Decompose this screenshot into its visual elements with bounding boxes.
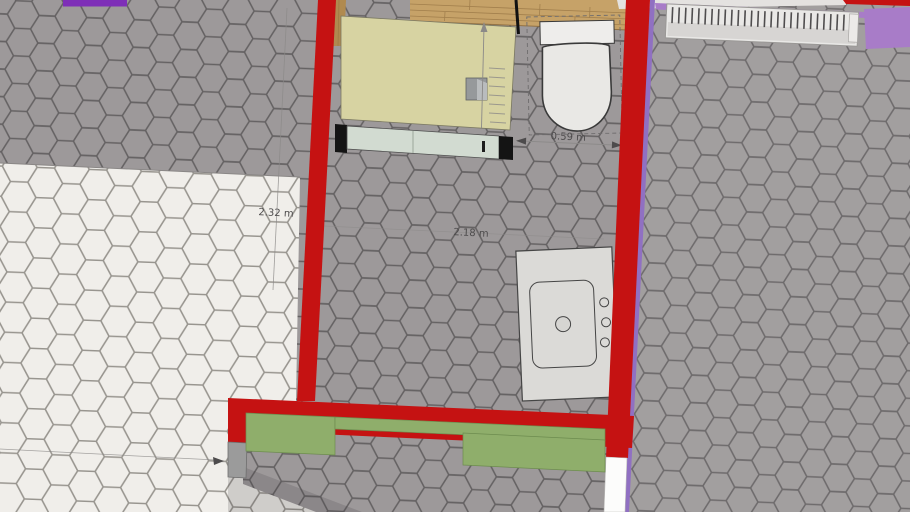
bathroom-cabinet[interactable] xyxy=(335,16,516,160)
radiator-end-cap xyxy=(848,14,858,42)
green-strip-right[interactable] xyxy=(463,433,605,472)
washbasin-unit[interactable] xyxy=(516,247,618,401)
wall-bottom-end-cap xyxy=(228,399,247,443)
dimension-label[interactable]: 2.32 m xyxy=(258,207,294,220)
right-room-light-overlay xyxy=(628,0,910,512)
doorway-gap[interactable] xyxy=(604,457,627,512)
green-strip-left[interactable] xyxy=(246,413,335,455)
toilet-bowl[interactable] xyxy=(541,43,612,132)
dimension-label[interactable]: 0.59 m xyxy=(550,131,586,144)
cabinet-handle xyxy=(482,141,485,152)
toilet-tank[interactable] xyxy=(540,20,614,45)
floorplan-top-view: 0.59 m 2.32 m 2.18 m xyxy=(0,0,910,512)
drain-hole xyxy=(555,316,571,332)
dimension-label[interactable]: 2.18 m xyxy=(453,227,489,240)
cabinet-front-cap-right xyxy=(499,136,513,160)
toilet[interactable] xyxy=(540,20,616,132)
wall-end-gray-block[interactable] xyxy=(228,442,247,478)
cabinet-front-cap-left xyxy=(335,124,347,153)
cad-viewport[interactable]: 0.59 m 2.32 m 2.18 m xyxy=(0,0,910,512)
purple-object-top-left[interactable] xyxy=(63,0,127,7)
purple-patch-corner[interactable] xyxy=(864,7,910,49)
